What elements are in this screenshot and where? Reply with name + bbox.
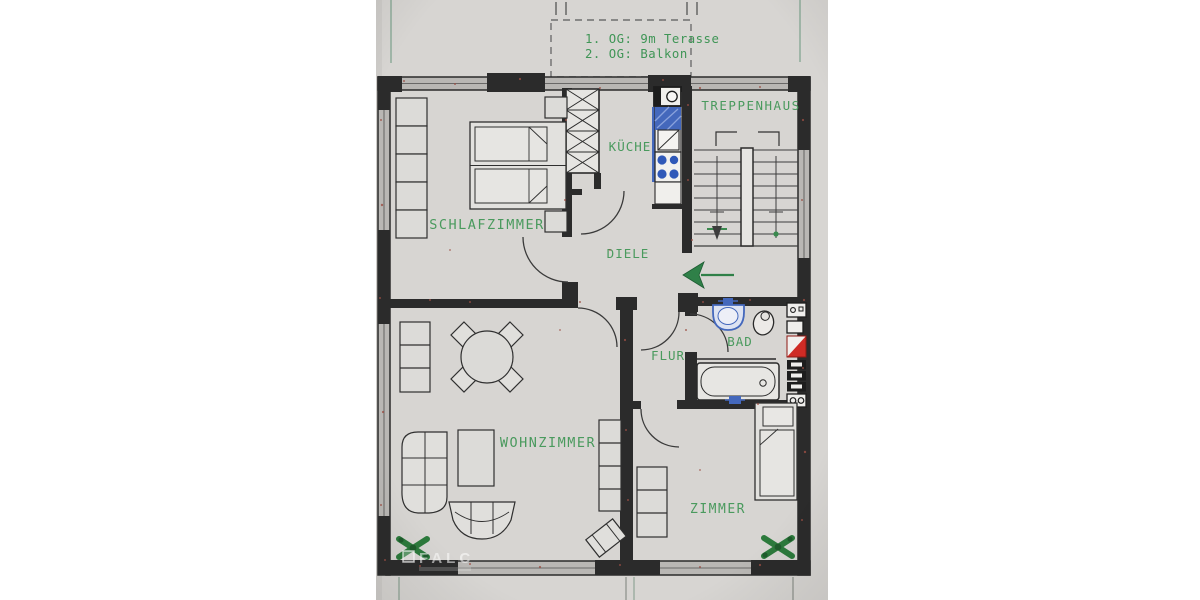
- photo-vignette: [376, 0, 828, 600]
- floor-plan-scan-page: 1. OG: 9m Terasse 2. OG: Balkon: [0, 0, 1200, 600]
- floor-plan-drawing: 1. OG: 9m Terasse 2. OG: Balkon: [0, 0, 1200, 600]
